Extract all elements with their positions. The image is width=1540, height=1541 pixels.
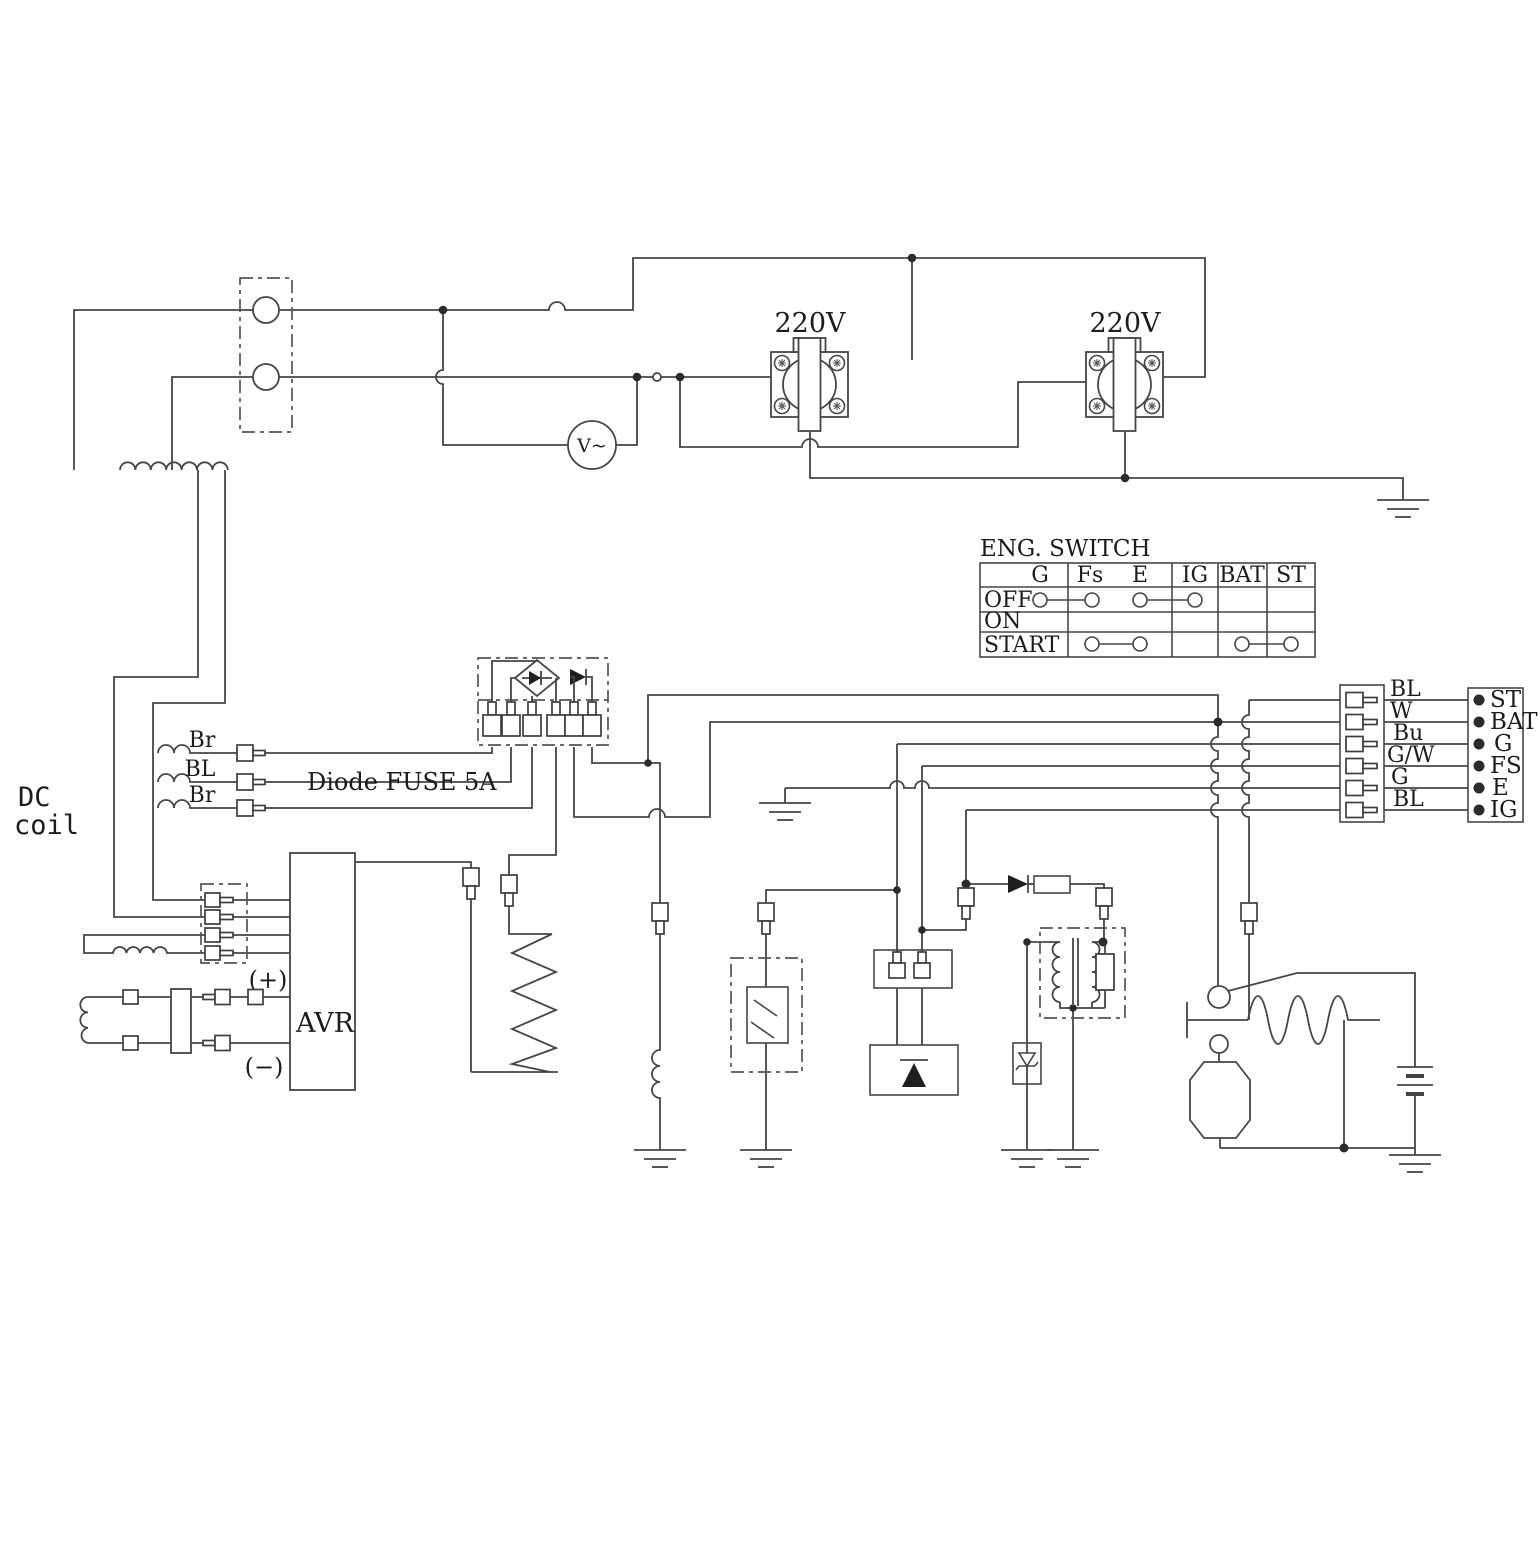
output-terminal-block xyxy=(240,278,292,432)
col-Fs: Fs xyxy=(1077,563,1104,588)
voltmeter-label: V~ xyxy=(576,435,607,457)
switch-table-title: ENG. SWITCH xyxy=(980,536,1151,562)
outlet2-voltage-label: 220V xyxy=(1089,308,1161,339)
wiring xyxy=(74,258,1415,1155)
wire-label-br-bottom: Br xyxy=(189,783,216,808)
outlet-220v-1: 220V xyxy=(771,308,848,431)
wire-label-br-top: Br xyxy=(189,728,216,753)
voltmeter: V~ xyxy=(568,421,616,469)
harness-connector: BL W Bu G/W G BL xyxy=(1340,677,1468,822)
row-START: START xyxy=(984,633,1060,658)
ground-symbols xyxy=(634,500,1441,1172)
col-G: G xyxy=(1031,563,1049,588)
terminal-ig: IG xyxy=(1490,797,1517,823)
ground-icon xyxy=(740,1150,792,1167)
ground-icon xyxy=(634,1150,686,1167)
avr-box xyxy=(290,853,355,1090)
dc-coil-label-1: DC xyxy=(18,782,51,813)
zener-diode xyxy=(1013,1043,1041,1084)
ignition-circuit xyxy=(1008,875,1125,1084)
wiring-diagram-page: V~ 220V 220V ENG. SWITCH G Fs E IG BAT S… xyxy=(0,0,1540,1541)
generator-wiring-schematic: V~ 220V 220V ENG. SWITCH G Fs E IG BAT S… xyxy=(0,0,1540,1541)
col-IG: IG xyxy=(1182,563,1208,588)
avr-connector-pins xyxy=(205,893,233,960)
col-BAT: BAT xyxy=(1219,563,1265,588)
outlet-220v-2: 220V xyxy=(1086,308,1163,431)
pulser-coil xyxy=(652,903,668,934)
ground-icon xyxy=(1377,500,1429,517)
dc-coil-label-2: coil xyxy=(14,810,79,841)
starter-motor xyxy=(1190,1062,1250,1138)
avr-minus-label: (−) xyxy=(245,1053,284,1081)
ground-icon xyxy=(759,803,811,820)
ground-icon xyxy=(1047,1150,1099,1167)
diode-fuse-label: Diode FUSE 5A xyxy=(307,768,497,796)
contact-links xyxy=(1033,593,1298,651)
ground-icon xyxy=(1001,1150,1053,1167)
avr-label: AVR xyxy=(295,1008,355,1039)
outlet1-voltage-label: 220V xyxy=(774,308,846,339)
wire-label-bl-2: BL xyxy=(1393,787,1424,812)
wire-label-bl: BL xyxy=(185,757,216,782)
col-ST: ST xyxy=(1276,563,1306,588)
terminal-strip: ST BAT G FS E IG xyxy=(1468,687,1538,823)
engine-switch-table: ENG. SWITCH G Fs E IG BAT ST OFF ON STAR… xyxy=(980,536,1315,658)
dc-coil: DC coil Br BL Br xyxy=(14,728,265,841)
ground-icon xyxy=(1389,1155,1441,1172)
diode-fuse-block: Diode FUSE 5A xyxy=(307,658,608,796)
col-E: E xyxy=(1132,563,1148,588)
row-ON: ON xyxy=(984,609,1021,634)
battery xyxy=(1397,1067,1433,1094)
avr-assembly: AVR (+) (−) xyxy=(123,853,355,1090)
